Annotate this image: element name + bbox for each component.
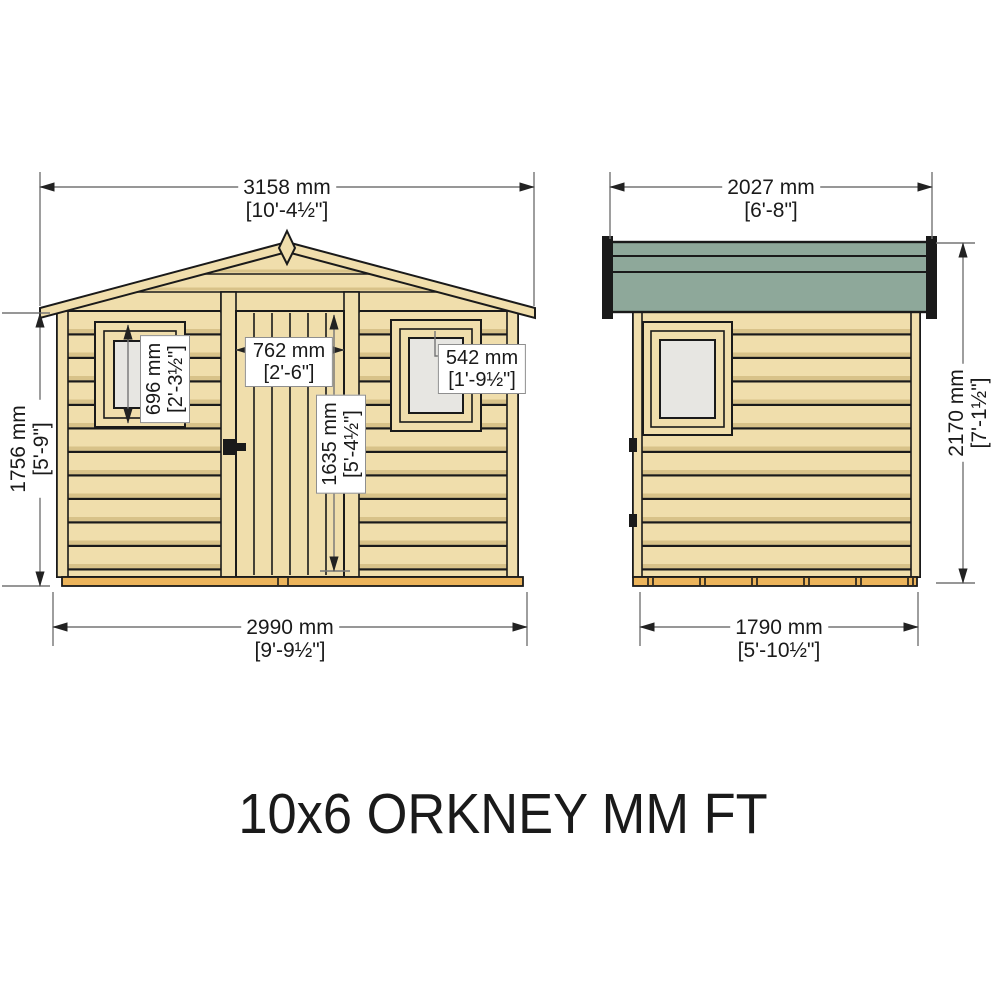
- side-roof: [608, 242, 930, 312]
- side-hinge-icon: [629, 438, 637, 452]
- dim-value-ft: [2'-6"]: [253, 362, 325, 384]
- front-corner-board-left: [57, 311, 68, 577]
- side-floor-base: [633, 577, 917, 586]
- dim-value-mm: 762 mm: [253, 340, 325, 362]
- drawing-title: 10x6 ORKNEY MM FT: [238, 781, 767, 847]
- door-latch-icon: [236, 443, 246, 451]
- dim-window-right-width: 542 mm [1'-9½"]: [438, 344, 526, 394]
- dim-value-mm: 542 mm: [446, 347, 518, 369]
- dim-value-ft: [2'-3½"]: [165, 343, 187, 415]
- side-corner-board-right: [911, 312, 920, 577]
- dim-value-mm: 2990 mm: [246, 616, 334, 639]
- dim-value-ft: [5'-10½"]: [735, 639, 823, 662]
- shed-technical-drawing: 3158 mm [10'-4½"] 2027 mm [6'-8"] 1756 m…: [0, 0, 1000, 1000]
- dim-front-eaves-height: 1756 mm [5'-9"]: [7, 400, 53, 498]
- side-elevation: [602, 236, 937, 586]
- dim-value-mm: 2027 mm: [727, 176, 815, 199]
- dim-value-mm: 696 mm: [143, 343, 165, 415]
- dim-value-ft: [10'-4½"]: [243, 199, 331, 222]
- front-elevation: [40, 231, 535, 586]
- dim-side-base-width: 1790 mm [5'-10½"]: [730, 616, 828, 662]
- dim-door-height: 1635 mm [5'-4½"]: [316, 394, 366, 493]
- dim-value-ft: [7'-1½"]: [968, 369, 991, 457]
- dim-value-ft: [9'-9½"]: [246, 639, 334, 662]
- dim-window-left-height: 696 mm [2'-3½"]: [140, 335, 190, 423]
- side-roof-end-cap-right: [926, 236, 937, 319]
- dim-value-ft: [5'-9"]: [30, 405, 53, 493]
- dim-value-ft: [5'-4½"]: [341, 402, 363, 485]
- dim-value-mm: 2170 mm: [945, 369, 968, 457]
- drawing-canvas: [0, 0, 1000, 1000]
- dim-front-base-width: 2990 mm [9'-9½"]: [241, 616, 339, 662]
- dim-value-ft: [6'-8"]: [727, 199, 815, 222]
- dim-value-ft: [1'-9½"]: [446, 369, 518, 391]
- dim-door-width: 762 mm [2'-6"]: [245, 337, 333, 387]
- side-roof-end-cap-left: [602, 236, 613, 319]
- door-post-left: [221, 292, 236, 577]
- front-floor-base: [62, 577, 523, 586]
- dim-value-mm: 1790 mm: [735, 616, 823, 639]
- door-header: [221, 292, 359, 312]
- dim-value-mm: 1756 mm: [7, 405, 30, 493]
- side-window-glass: [660, 340, 715, 418]
- dim-side-overall-width: 2027 mm [6'-8"]: [722, 176, 820, 222]
- dim-value-mm: 1635 mm: [319, 402, 341, 485]
- dim-front-overall-width: 3158 mm [10'-4½"]: [238, 176, 336, 222]
- dim-value-mm: 3158 mm: [243, 176, 331, 199]
- door-hinge-icon: [223, 439, 236, 455]
- side-hinge-icon: [629, 514, 637, 527]
- dim-side-overall-height: 2170 mm [7'-1½"]: [945, 364, 991, 462]
